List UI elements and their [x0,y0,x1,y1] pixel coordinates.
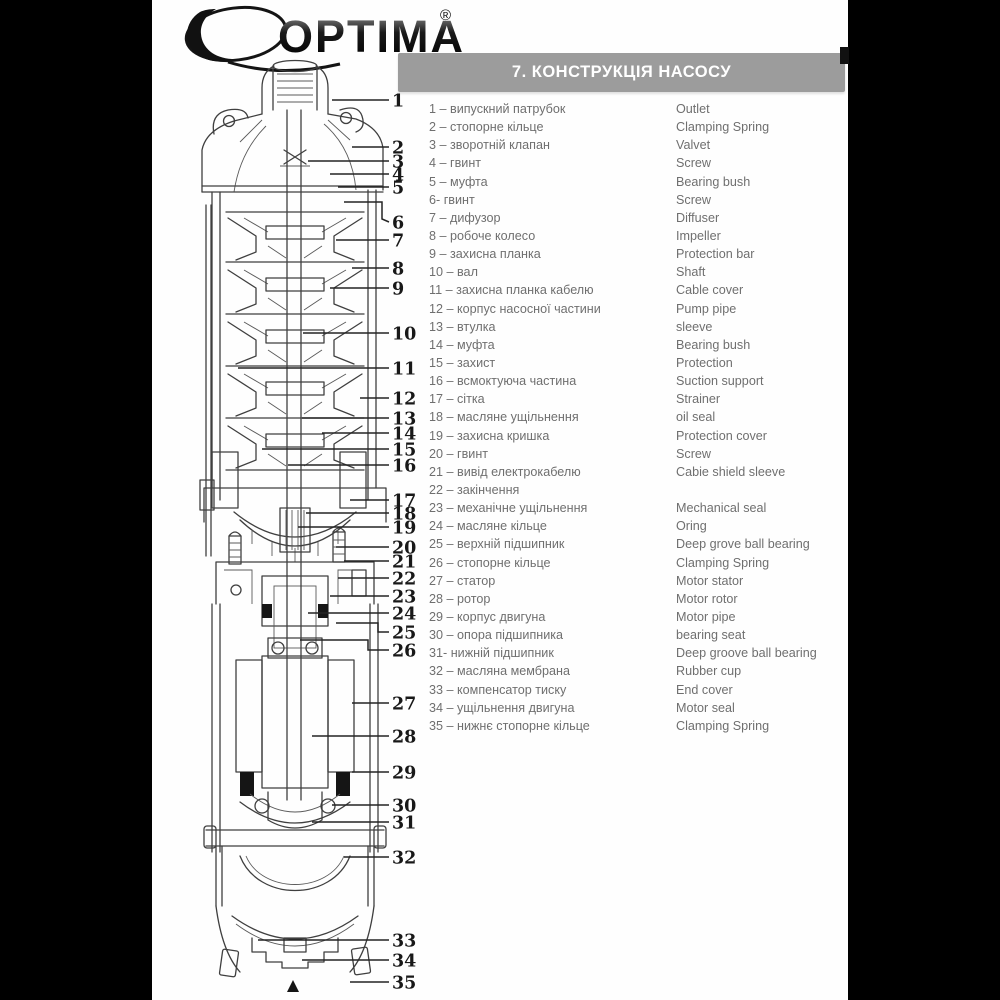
part-label-uk: 5 – муфта [429,173,676,191]
page: OPTIMA ® 7. КОНСТРУКЦІЯ НАСОСУ [0,0,1000,1000]
part-label-uk: 9 – захисна планка [429,245,676,263]
part-label-en: Bearing bush [676,336,844,354]
impeller-diffuser-stack [226,212,364,470]
parts-list-row: 23 – механічне ущільненняMechanical seal [429,499,844,517]
part-label-uk: 22 – закінчення [429,481,676,499]
part-label-uk: 33 – компенсатор тиску [429,681,676,699]
callout-number-29: 29 [392,764,416,784]
part-label-en: Clamping Spring [676,717,844,735]
parts-list-row: 35 – нижнє стопорне кільцеClamping Sprin… [429,717,844,735]
parts-list-row: 4 – гвинтScrew [429,154,844,172]
parts-list-row: 14 – муфтаBearing bush [429,336,844,354]
part-label-uk: 31- нижній підшипник [429,644,676,662]
callout-number-5: 5 [392,179,404,199]
parts-list-row: 27 – статорMotor stator [429,572,844,590]
discharge-head [202,108,383,192]
parts-list-row: 34 – ущільнення двигунаMotor seal [429,699,844,717]
part-label-en: Impeller [676,227,844,245]
part-label-uk: 11 – захисна планка кабелю [429,281,676,299]
part-label-uk: 30 – опора підшипника [429,626,676,644]
callout-number-6: 6 [392,214,404,234]
motor-rotor [262,560,328,800]
part-label-uk: 27 – статор [429,572,676,590]
part-label-uk: 3 – зворотній клапан [429,136,676,154]
parts-list-row: 9 – захисна планкаProtection bar [429,245,844,263]
callout-number-27: 27 [392,695,416,715]
part-label-en: Pump pipe [676,300,844,318]
part-label-uk: 16 – всмоктуюча частина [429,372,676,390]
part-label-uk: 8 – робоче колесо [429,227,676,245]
parts-list-row: 11 – захисна планка кабелюCable cover [429,281,844,299]
part-label-en: Cable cover [676,281,844,299]
part-label-uk: 35 – нижнє стопорне кільце [429,717,676,735]
part-label-en: Motor pipe [676,608,844,626]
part-label-en: Valvet [676,136,844,154]
parts-list-row: 10 – валShaft [429,263,844,281]
callout-number-10: 10 [392,325,416,345]
parts-list-row: 21 – вивід електрокабелюCabie shield sle… [429,463,844,481]
callout-number-26: 26 [392,642,416,662]
parts-list-row: 29 – корпус двигунаMotor pipe [429,608,844,626]
callout-number-19: 19 [392,519,416,539]
part-label-uk: 28 – ротор [429,590,676,608]
callout-number-35: 35 [392,974,416,994]
part-label-en: Motor rotor [676,590,844,608]
part-label-en: oil seal [676,408,844,426]
callout-number-34: 34 [392,952,416,972]
callout-number-28: 28 [392,728,416,748]
callout-number-8: 8 [392,260,404,280]
callout-number-32: 32 [392,849,416,869]
part-label-uk: 21 – вивід електрокабелю [429,463,676,481]
part-label-en: Suction support [676,372,844,390]
part-label-uk: 13 – втулка [429,318,676,336]
parts-list-row: 31- нижній підшипникDeep groove ball bea… [429,644,844,662]
orientation-marker-triangle [287,980,299,992]
part-label-uk: 29 – корпус двигуна [429,608,676,626]
parts-list-row: 16 – всмоктуюча частинаSuction support [429,372,844,390]
part-label-uk: 34 – ущільнення двигуна [429,699,676,717]
parts-list-row: 28 – роторMotor rotor [429,590,844,608]
parts-list-row: 32 – масляна мембранаRubber cup [429,662,844,680]
parts-list-row: 5 – муфтаBearing bush [429,173,844,191]
parts-list-row: 22 – закінчення [429,481,844,499]
parts-list-row: 20 – гвинтScrew [429,445,844,463]
motor-stator [236,660,354,796]
diagram-callouts: 1234567891011121314151617181920212223242… [238,92,416,994]
part-label-en: Outlet [676,100,844,118]
part-label-en: Motor stator [676,572,844,590]
part-label-en: Deep groove ball bearing [676,644,844,662]
part-label-uk: 14 – муфта [429,336,676,354]
part-label-en: Screw [676,154,844,172]
part-label-en [676,481,844,499]
part-label-en: Oring [676,517,844,535]
part-label-en: Cabie shield sleeve [676,463,844,481]
callout-number-22: 22 [392,570,416,590]
suction-support [204,488,386,562]
part-label-en: bearing seat [676,626,844,644]
part-label-uk: 12 – корпус насосної частини [429,300,676,318]
outlet-port [262,61,328,115]
part-label-uk: 17 – сітка [429,390,676,408]
parts-list-row: 3 – зворотній клапанValvet [429,136,844,154]
motor-pipe [212,604,378,852]
part-label-en: Clamping Spring [676,118,844,136]
part-label-uk: 15 – захист [429,354,676,372]
callout-number-9: 9 [392,280,404,300]
parts-list-row: 13 – втулкаsleeve [429,318,844,336]
parts-list-row: 7 – дифузорDiffuser [429,209,844,227]
callout-number-24: 24 [392,605,416,625]
part-label-uk: 19 – захисна кришка [429,427,676,445]
parts-list-row: 1 – випускний патрубокOutlet [429,100,844,118]
parts-list-row: 33 – компенсатор тискуEnd cover [429,681,844,699]
part-label-uk: 25 – верхній підшипник [429,535,676,553]
part-label-en: Screw [676,445,844,463]
pump-casing [212,190,376,500]
callout-number-33: 33 [392,932,416,952]
part-label-en: Protection cover [676,427,844,445]
callout-number-1: 1 [392,92,404,112]
part-label-en: sleeve [676,318,844,336]
parts-list-row: 19 – захисна кришкаProtection cover [429,427,844,445]
parts-list-row: 26 – стопорне кільцеClamping Spring [429,554,844,572]
part-label-uk: 32 – масляна мембрана [429,662,676,680]
parts-list-row: 24 – масляне кільцеOring [429,517,844,535]
part-label-en: Protection [676,354,844,372]
parts-list-row: 25 – верхній підшипникDeep grove ball be… [429,535,844,553]
callout-number-12: 12 [392,390,416,410]
callout-leader-25 [336,623,389,632]
part-label-en: Motor seal [676,699,844,717]
part-label-en: Protection bar [676,245,844,263]
part-label-en: Strainer [676,390,844,408]
part-label-uk: 20 – гвинт [429,445,676,463]
strainer [212,452,366,508]
parts-list-row: 12 – корпус насосної частиниPump pipe [429,300,844,318]
callout-number-31: 31 [392,814,416,834]
callout-number-7: 7 [392,232,404,252]
parts-list-row: 15 – захистProtection [429,354,844,372]
callout-number-16: 16 [392,457,416,477]
shaft [287,110,301,560]
part-label-uk: 24 – масляне кільце [429,517,676,535]
check-valve [280,150,310,166]
parts-list-row: 6- гвинтScrew [429,191,844,209]
callout-number-11: 11 [392,360,416,380]
part-label-en: Shaft [676,263,844,281]
end-cover [216,906,374,977]
part-label-en: Screw [676,191,844,209]
parts-list-row: 18 – масляне ущільненняoil seal [429,408,844,426]
part-label-uk: 7 – дифузор [429,209,676,227]
part-label-uk: 6- гвинт [429,191,676,209]
part-label-uk: 2 – стопорне кільце [429,118,676,136]
parts-list-row: 8 – робоче колесоImpeller [429,227,844,245]
parts-list-row: 2 – стопорне кільцеClamping Spring [429,118,844,136]
part-label-uk: 23 – механічне ущільнення [429,499,676,517]
part-label-uk: 18 – масляне ущільнення [429,408,676,426]
part-label-en: Mechanical seal [676,499,844,517]
part-label-en: Clamping Spring [676,554,844,572]
part-label-en: Deep grove ball bearing [676,535,844,553]
part-label-uk: 26 – стопорне кільце [429,554,676,572]
part-label-uk: 10 – вал [429,263,676,281]
motor-top-seal-housing [216,562,374,648]
parts-list-row: 30 – опора підшипникаbearing seat [429,626,844,644]
part-label-uk: 1 – випускний патрубок [429,100,676,118]
parts-list-row: 17 – сіткаStrainer [429,390,844,408]
part-label-en: Diffuser [676,209,844,227]
part-label-en: Rubber cup [676,662,844,680]
parts-list: 1 – випускний патрубокOutlet2 – стопорне… [429,100,844,735]
callout-number-25: 25 [392,624,416,644]
rubber-membrane [204,826,386,906]
part-label-en: Bearing bush [676,173,844,191]
part-label-en: End cover [676,681,844,699]
part-label-uk: 4 – гвинт [429,154,676,172]
